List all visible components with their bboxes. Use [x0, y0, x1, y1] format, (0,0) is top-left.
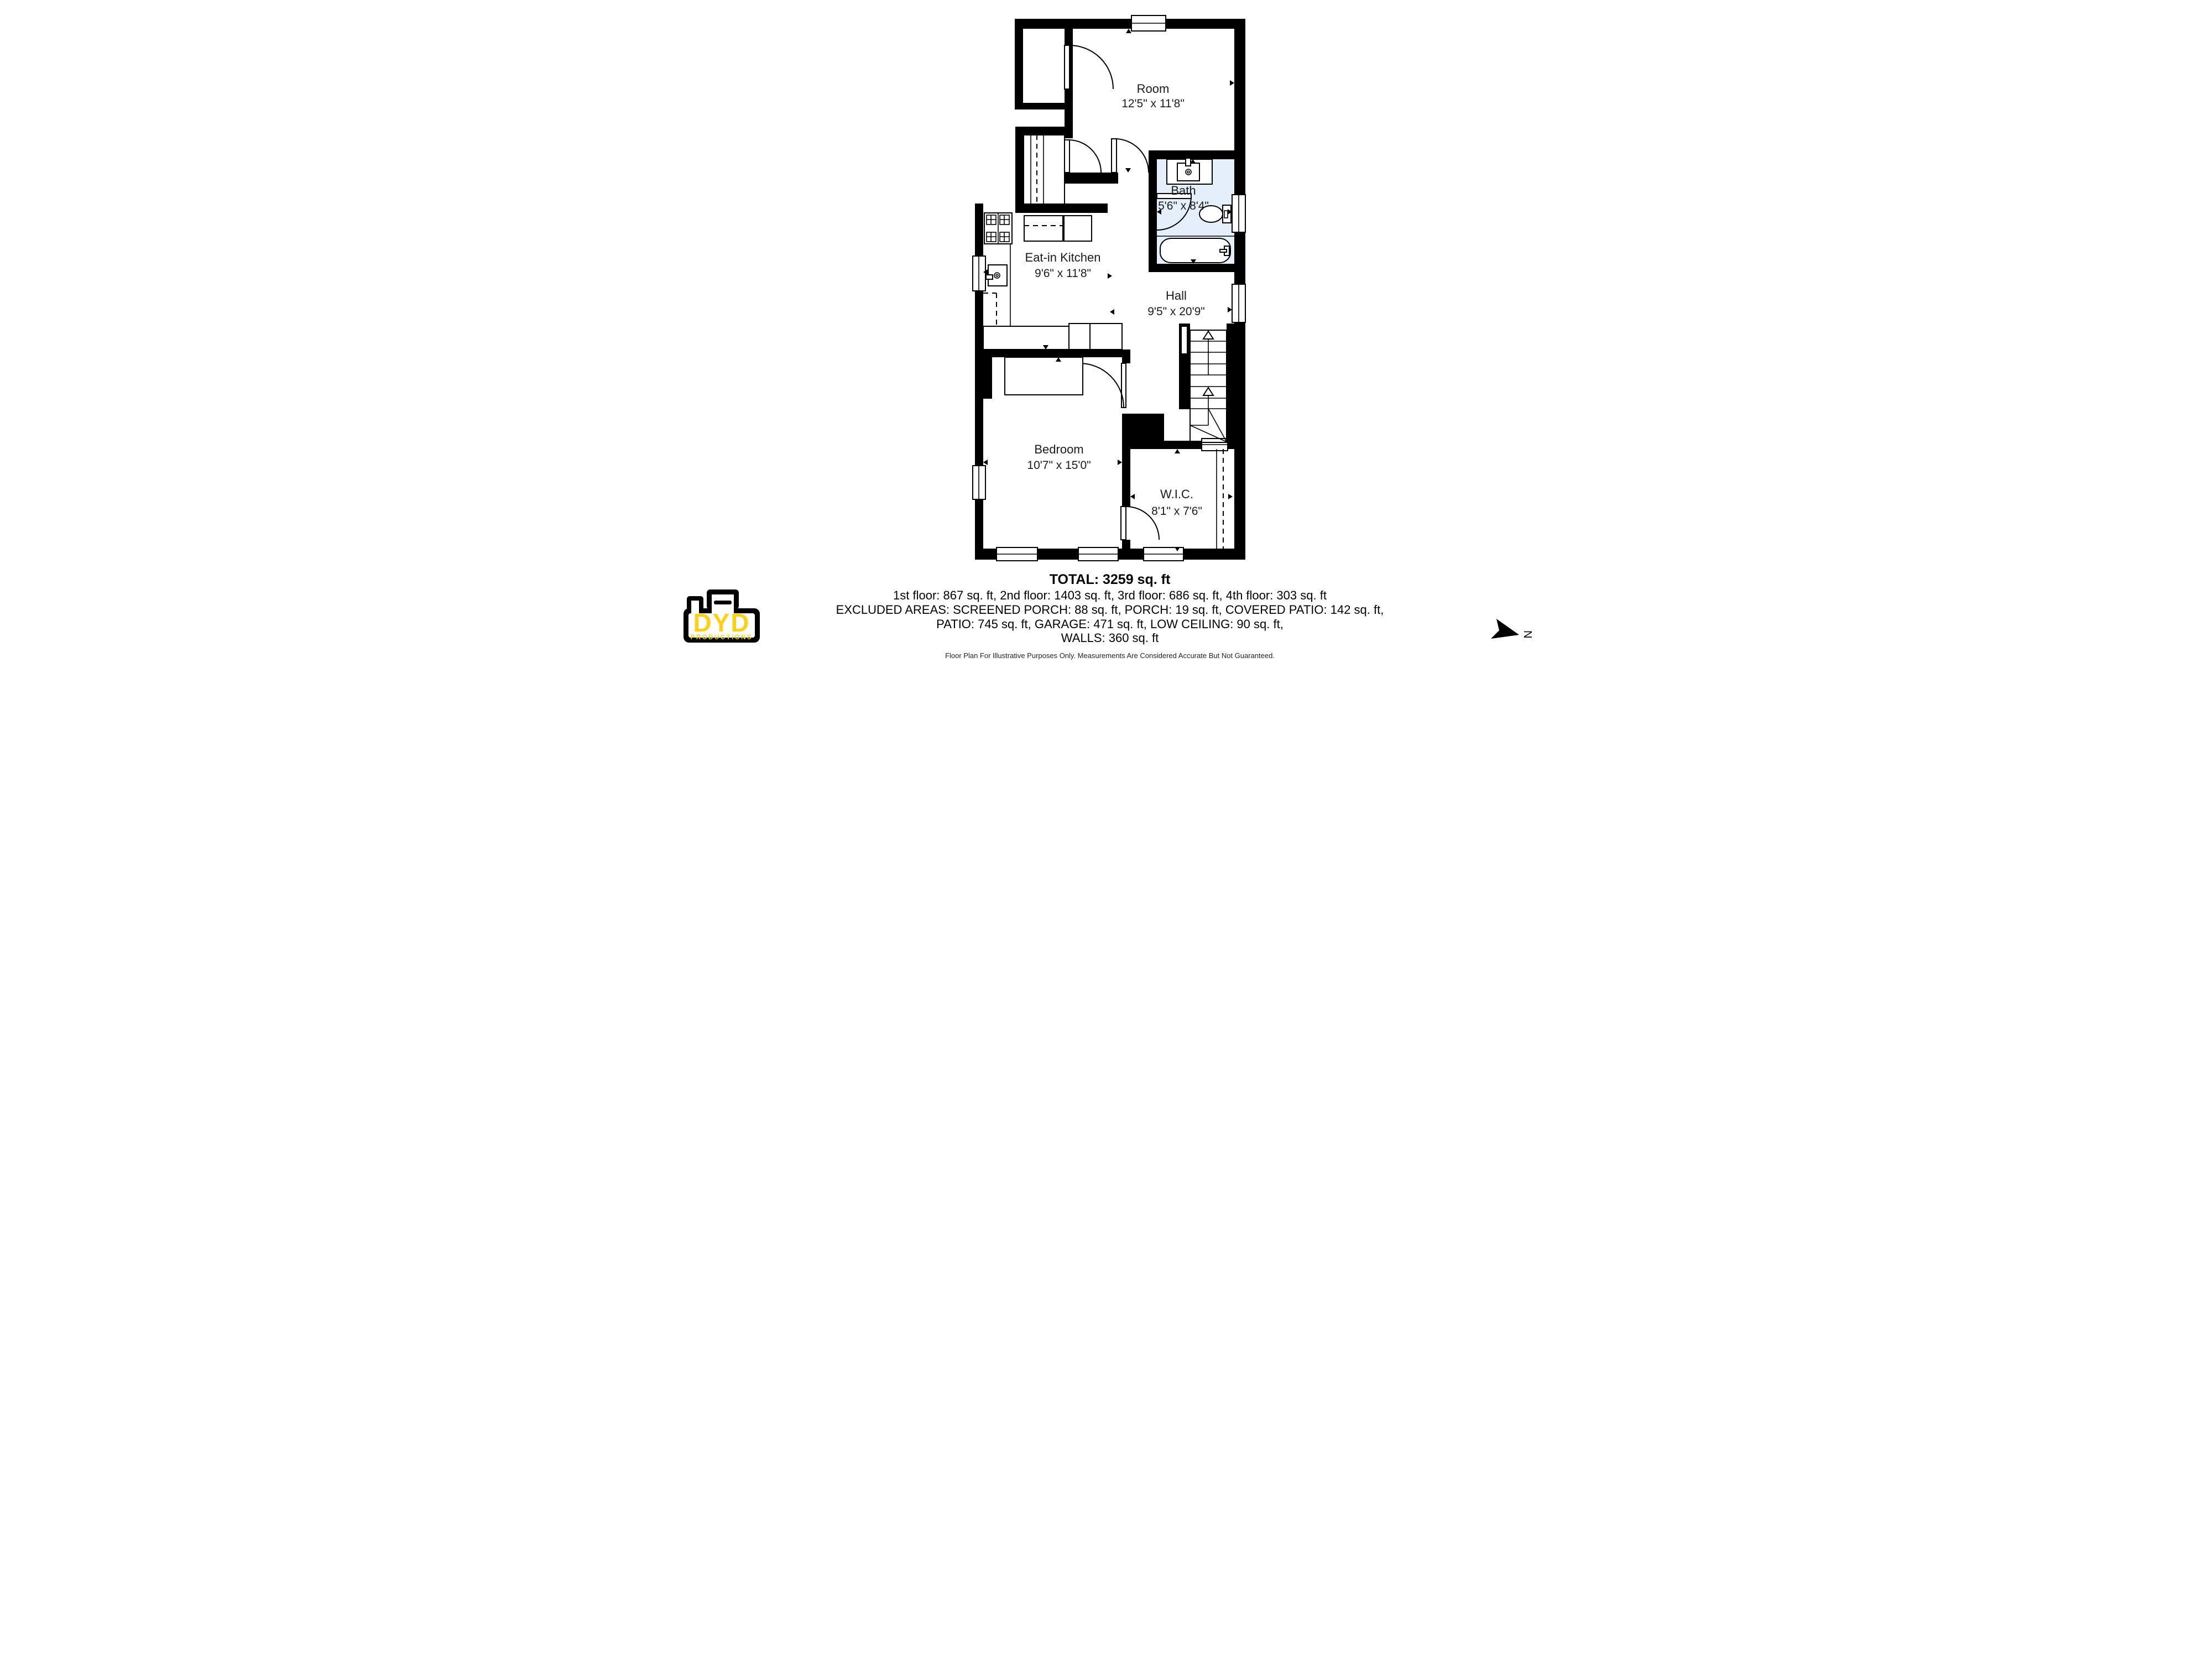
excluded-areas-text-1: EXCLUDED AREAS: SCREENED PORCH: 88 sq. f…	[836, 603, 1384, 617]
room-dims: 10'7" x 15'0"	[1027, 459, 1091, 472]
walls-area-text: WALLS: 360 sq. ft	[1061, 631, 1159, 645]
excluded-areas-text-2: PATIO: 745 sq. ft, GARAGE: 471 sq. ft, L…	[936, 617, 1284, 631]
room-dims: 9'5" x 20'9"	[1147, 305, 1205, 318]
summary-block: TOTAL: 3259 sq. ft 1st floor: 867 sq. ft…	[836, 572, 1384, 660]
room-name: Bedroom	[1034, 442, 1083, 456]
door-landing-left	[1065, 140, 1101, 173]
bathtub	[1160, 238, 1230, 263]
stairs-upper	[1024, 135, 1065, 205]
door-landing-right	[1112, 139, 1149, 173]
window	[997, 547, 1037, 561]
total-area-text: TOTAL: 3259 sq. ft	[1050, 572, 1171, 587]
counter-block	[1064, 216, 1092, 241]
window	[1131, 15, 1166, 31]
room-dims: 9'6" x 11'8"	[1035, 267, 1091, 280]
room-dims: 12'5" x 11'8"	[1121, 97, 1185, 110]
logo-subtitle: PRODUCTIONS	[691, 634, 753, 641]
room-name: Hall	[1166, 289, 1187, 302]
window	[1232, 284, 1245, 322]
bed	[1005, 357, 1083, 395]
kitchen-sink	[986, 265, 1007, 286]
window	[1078, 547, 1118, 561]
north-label: N	[1521, 630, 1533, 638]
room-name: Eat-in Kitchen	[1025, 251, 1101, 264]
window	[973, 256, 985, 291]
stove	[984, 213, 1012, 244]
north-arrow-icon	[1491, 619, 1519, 639]
stairs-up-arrow	[1203, 388, 1213, 395]
north-compass: N	[1491, 619, 1533, 639]
room-name: Bath	[1171, 184, 1196, 197]
room-name: Room	[1137, 82, 1170, 96]
stairs-up-arrow	[1203, 331, 1213, 339]
room-label-kitchen: Eat-in Kitchen 9'6" x 11'8"	[1025, 251, 1101, 280]
room-dims: 5'6" x 8'4"	[1158, 200, 1209, 212]
floor-plan-page: Room 12'5" x 11'8" Bath 5'6" x 8'4" Eat-…	[664, 0, 1548, 664]
kitchen-fixtures	[983, 213, 1122, 349]
stairs-hall	[1190, 330, 1227, 442]
room-label-room: Room 12'5" x 11'8"	[1121, 82, 1185, 110]
floor-plan-canvas: Room 12'5" x 11'8" Bath 5'6" x 8'4" Eat-…	[664, 0, 1548, 664]
disclaimer-text: Floor Plan For Illustrative Purposes Onl…	[945, 651, 1275, 660]
floors-area-text: 1st floor: 867 sq. ft, 2nd floor: 1403 s…	[893, 588, 1327, 602]
door-bedroom	[1079, 363, 1126, 408]
stair-rail	[1181, 326, 1187, 354]
logo-name: DYD	[693, 608, 750, 637]
closet-rod	[1217, 449, 1223, 549]
windows	[973, 15, 1245, 561]
room-label-wic: W.I.C. 8'1" x 7'6"	[1151, 487, 1202, 518]
room-label-bedroom: Bedroom 10'7" x 15'0"	[1027, 442, 1091, 472]
room-dims: 8'1" x 7'6"	[1151, 505, 1202, 518]
kitchen-counters	[983, 293, 1122, 349]
fridge	[1024, 216, 1063, 241]
walls	[975, 19, 1245, 560]
bath-vanity	[1167, 158, 1212, 184]
window	[1232, 195, 1245, 232]
room-name: W.I.C.	[1160, 487, 1193, 501]
window	[973, 466, 985, 499]
room-label-hall: Hall 9'5" x 20'9"	[1147, 289, 1205, 318]
dyd-productions-logo: DYD PRODUCTIONS	[684, 589, 760, 643]
